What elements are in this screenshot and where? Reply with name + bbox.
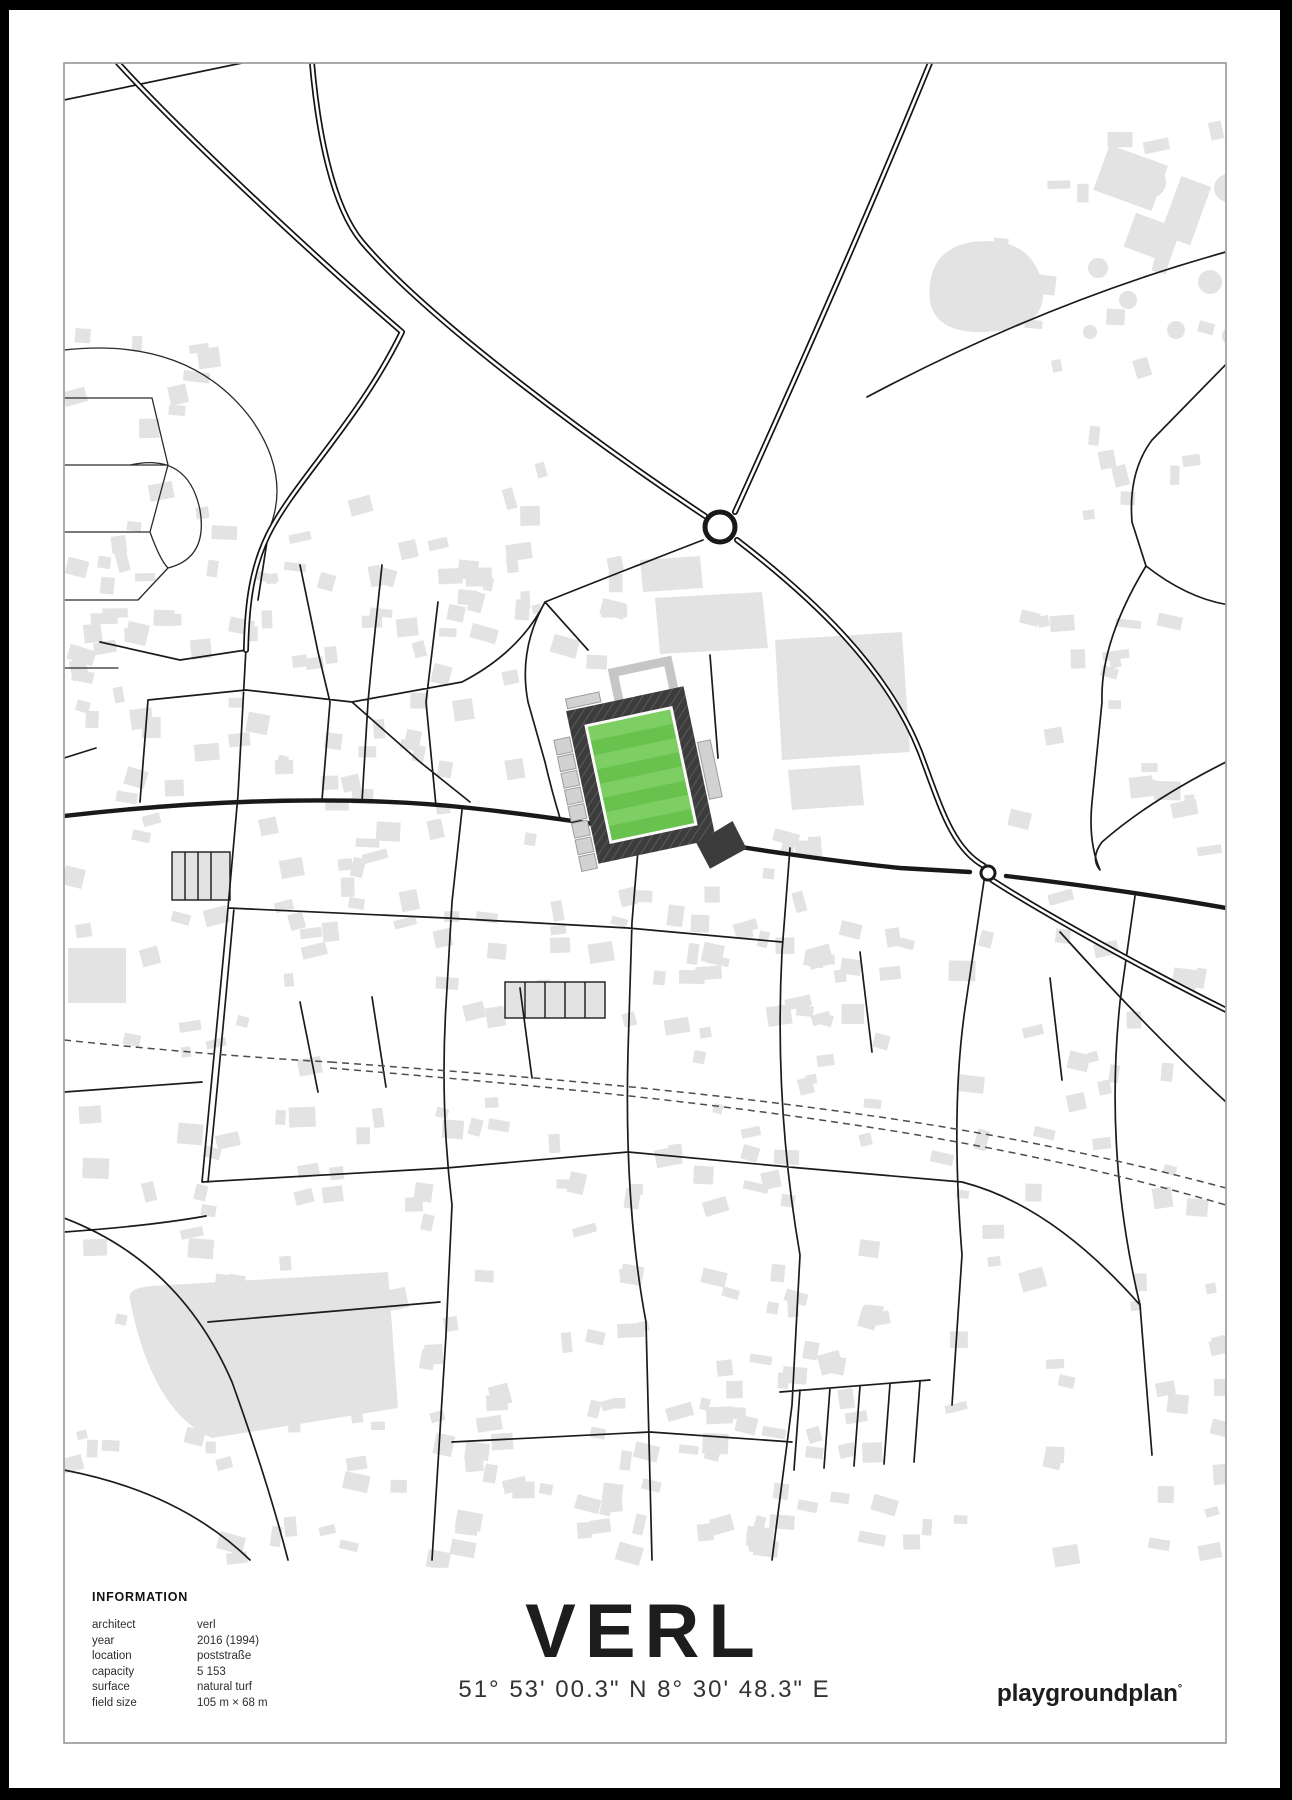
info-label: capacity <box>92 1665 197 1679</box>
building <box>485 1097 499 1108</box>
building <box>165 780 184 797</box>
building <box>982 1225 1004 1239</box>
building <box>805 1074 817 1085</box>
building <box>135 573 155 581</box>
building <box>245 712 270 736</box>
info-label: field size <box>92 1696 197 1710</box>
building <box>577 1522 593 1539</box>
information-heading: INFORMATION <box>92 1590 412 1604</box>
building <box>816 1054 834 1067</box>
building <box>177 1122 204 1145</box>
building <box>1141 763 1157 772</box>
building <box>1025 1184 1042 1202</box>
info-value: natural turf <box>197 1680 412 1694</box>
building <box>524 832 537 846</box>
building <box>132 336 143 352</box>
building <box>362 615 383 628</box>
building <box>126 521 141 532</box>
building <box>837 1388 855 1410</box>
building <box>690 914 709 932</box>
building <box>194 743 220 762</box>
building <box>556 1179 568 1188</box>
building <box>424 1344 443 1365</box>
pond <box>930 241 1044 332</box>
building <box>1126 1011 1141 1028</box>
building <box>129 707 153 730</box>
building <box>376 821 401 841</box>
building <box>455 1517 479 1536</box>
building <box>697 1523 714 1542</box>
brand-logo: playgroundplan° <box>997 1680 1182 1708</box>
building <box>464 1455 484 1473</box>
building <box>1108 132 1133 147</box>
building <box>139 419 160 439</box>
building <box>987 1256 1001 1267</box>
building <box>841 1004 864 1024</box>
industrial-building <box>655 592 768 654</box>
building <box>1092 1137 1111 1150</box>
brand-text: playgroundplan <box>997 1680 1178 1707</box>
building <box>1129 775 1155 798</box>
building <box>653 970 666 985</box>
building <box>586 655 607 670</box>
building <box>716 1359 733 1376</box>
building <box>587 941 614 964</box>
building <box>322 921 340 942</box>
building <box>100 577 115 595</box>
building <box>1167 1394 1190 1414</box>
field-parcel <box>68 948 126 1003</box>
building <box>1052 1544 1080 1568</box>
building <box>762 868 774 880</box>
building <box>548 1134 560 1154</box>
building <box>858 1239 880 1258</box>
building <box>766 1301 779 1314</box>
industrial-building <box>788 765 864 810</box>
building <box>115 1313 128 1325</box>
building <box>840 958 862 976</box>
building <box>487 942 507 960</box>
building <box>520 591 530 609</box>
information-block: INFORMATION architectverl year2016 (1994… <box>92 1590 412 1710</box>
building <box>879 966 901 981</box>
building <box>275 760 294 775</box>
building <box>341 877 355 897</box>
building <box>485 1006 506 1029</box>
building <box>520 506 540 526</box>
building <box>699 1026 712 1038</box>
building <box>954 1515 968 1524</box>
building <box>770 1264 785 1283</box>
building <box>1120 491 1135 505</box>
building <box>808 836 822 857</box>
building <box>371 1422 385 1430</box>
building <box>802 1341 820 1361</box>
info-value: 2016 (1994) <box>197 1634 412 1648</box>
building <box>780 1194 795 1208</box>
building <box>778 1372 789 1388</box>
building <box>590 1518 612 1534</box>
building <box>206 1442 216 1454</box>
building <box>885 927 902 947</box>
building <box>550 937 571 953</box>
building <box>124 627 144 640</box>
building <box>324 646 338 664</box>
building <box>805 1446 824 1459</box>
building <box>396 617 419 637</box>
city-map-svg <box>0 0 1292 1800</box>
building <box>443 1316 459 1332</box>
building <box>91 613 118 624</box>
building <box>413 1182 433 1203</box>
building <box>83 623 103 643</box>
building <box>561 1332 573 1353</box>
building <box>1082 509 1095 520</box>
building <box>746 1526 774 1548</box>
info-value: verl <box>197 1618 412 1632</box>
building <box>168 405 185 417</box>
building <box>922 1519 933 1536</box>
building <box>75 923 92 939</box>
poster-coordinates: 51° 53' 00.3" N 8° 30' 48.3" E <box>458 1676 830 1704</box>
building <box>356 1127 370 1144</box>
building <box>390 1480 407 1493</box>
building <box>258 816 279 836</box>
building <box>775 937 794 954</box>
building <box>446 604 466 623</box>
building <box>617 1323 645 1338</box>
building <box>275 1110 286 1125</box>
building <box>87 1440 98 1458</box>
building <box>288 1107 315 1128</box>
info-value: 5 153 <box>197 1665 412 1679</box>
building <box>1108 700 1121 709</box>
info-label: architect <box>92 1618 197 1632</box>
building <box>82 1158 109 1180</box>
building <box>229 698 244 708</box>
building <box>228 732 251 747</box>
building <box>506 556 519 574</box>
building <box>504 758 525 781</box>
info-label: year <box>92 1634 197 1648</box>
building <box>1088 426 1100 446</box>
building <box>279 1256 292 1271</box>
building <box>1070 649 1085 669</box>
building <box>502 669 520 686</box>
building <box>704 886 720 902</box>
building <box>75 328 91 343</box>
building <box>956 1074 984 1094</box>
building <box>1170 465 1180 484</box>
building <box>769 1514 795 1530</box>
info-label: surface <box>92 1680 197 1694</box>
building <box>679 970 705 984</box>
building <box>211 525 237 540</box>
building <box>491 1433 514 1451</box>
building <box>97 556 111 570</box>
building <box>101 1439 119 1451</box>
small-roundabout <box>981 866 995 880</box>
information-rows: architectverl year2016 (1994) locationpo… <box>92 1618 412 1710</box>
building <box>602 1483 624 1506</box>
poster-title: VERL <box>525 1594 764 1670</box>
building <box>399 889 420 912</box>
building <box>630 1184 643 1195</box>
building <box>438 568 463 585</box>
building <box>1182 454 1201 468</box>
building <box>862 1442 883 1463</box>
building <box>153 610 174 627</box>
building <box>1046 1359 1064 1370</box>
building <box>439 628 457 637</box>
building <box>950 1331 968 1348</box>
building <box>292 655 308 668</box>
building <box>706 1406 733 1424</box>
brand-mark: ° <box>1178 1683 1182 1695</box>
roundabout <box>705 512 735 542</box>
building <box>187 1238 214 1259</box>
building <box>1044 726 1064 745</box>
building <box>322 1185 344 1203</box>
building <box>338 858 353 871</box>
building <box>692 1050 706 1064</box>
building <box>475 1270 495 1283</box>
building <box>863 1099 881 1109</box>
building <box>83 1239 107 1256</box>
building <box>1186 1198 1209 1217</box>
building <box>726 1381 743 1399</box>
building <box>1106 308 1125 325</box>
building <box>693 1166 714 1185</box>
info-label: location <box>92 1649 197 1663</box>
building <box>668 1143 683 1156</box>
building <box>1157 1486 1174 1503</box>
info-value: 105 m × 68 m <box>197 1696 412 1710</box>
building <box>358 746 376 757</box>
building <box>1049 614 1075 632</box>
building <box>1047 180 1070 189</box>
building <box>206 560 219 578</box>
building <box>284 1516 298 1537</box>
building <box>404 729 422 747</box>
building <box>1205 1282 1217 1294</box>
building <box>283 973 294 987</box>
building <box>666 904 684 927</box>
info-value: poststraße <box>197 1649 412 1663</box>
building <box>197 346 221 369</box>
building <box>1077 184 1089 203</box>
building <box>1152 1186 1174 1209</box>
building <box>195 506 209 519</box>
building <box>452 698 475 722</box>
building <box>1184 794 1195 805</box>
building <box>1160 1063 1173 1082</box>
building <box>356 838 380 848</box>
building <box>1214 1379 1226 1396</box>
building <box>437 760 453 778</box>
building <box>903 1534 920 1550</box>
building <box>78 1105 101 1124</box>
poster: INFORMATION architectverl year2016 (1994… <box>9 10 1280 1788</box>
building <box>261 610 272 628</box>
